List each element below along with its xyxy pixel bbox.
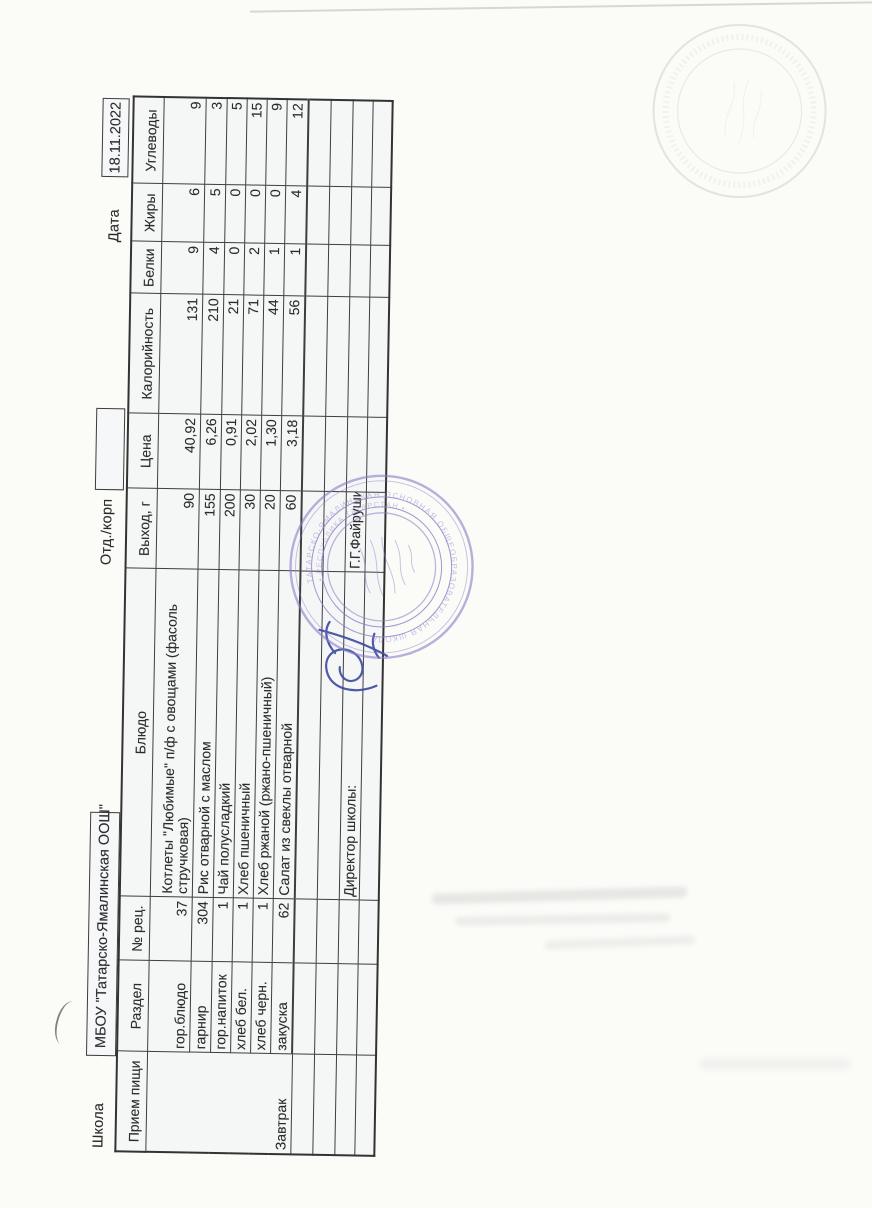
scan-smudge	[700, 1058, 850, 1070]
protein-cell: 2	[243, 243, 264, 295]
protein-cell: 9	[160, 242, 203, 295]
empty-cell	[351, 100, 373, 187]
empty-cell	[369, 246, 390, 298]
col-header-carbs: Углеводы	[132, 96, 164, 184]
col-header-meal: Прием пищи	[115, 1051, 147, 1152]
empty-cell	[290, 1054, 314, 1154]
empty-cell	[292, 963, 316, 1054]
empty-cell	[358, 900, 379, 964]
school-label: Школа	[90, 1103, 107, 1148]
output-cell: 200	[218, 490, 239, 570]
section-cell: закуска	[270, 963, 294, 1054]
empty-cell	[306, 186, 329, 244]
recipe-cell: 62	[272, 899, 295, 963]
section-cell: гор.напиток	[210, 962, 232, 1053]
empty-cell	[307, 99, 331, 186]
fat-cell: 5	[203, 185, 225, 243]
recipe-cell: 1	[232, 898, 253, 962]
fat-cell: 0	[264, 186, 285, 244]
empty-cell	[325, 297, 349, 417]
school-name: МБОУ "Татарско-Ямалинская ООШ"	[93, 804, 113, 1055]
carbs-cell: 9	[265, 99, 287, 186]
col-header-fat: Жиры	[131, 183, 162, 242]
calories-cell: 131	[158, 294, 202, 415]
empty-cell	[370, 188, 391, 246]
dept-box	[95, 408, 125, 490]
price-cell: 6,26	[199, 415, 221, 490]
price-cell: 40,92	[157, 414, 200, 490]
fat-cell: 4	[284, 186, 307, 244]
protein-cell: 0	[223, 243, 244, 295]
empty-cell	[367, 298, 389, 418]
calories-cell: 71	[241, 295, 263, 415]
calories-cell: 21	[221, 295, 243, 415]
empty-cell	[356, 964, 378, 1055]
col-header-calories: Калорийность	[128, 293, 160, 414]
carbs-cell: 12	[285, 99, 309, 186]
col-header-section: Раздел	[117, 960, 149, 1052]
empty-cell	[314, 964, 338, 1055]
calories-cell: 44	[261, 296, 283, 416]
recipe-cell: 304	[191, 898, 213, 962]
output-cell: 90	[155, 489, 198, 570]
col-header-price: Цена	[127, 413, 158, 489]
empty-cell	[329, 100, 353, 187]
empty-cell	[328, 187, 351, 245]
empty-cell	[354, 1055, 376, 1155]
empty-cell	[336, 964, 358, 1055]
col-header-output: Выход, г	[126, 488, 157, 569]
scanned-page: { "form": { "school_label": "Школа", "sc…	[0, 0, 872, 1200]
carbs-cell: 15	[245, 98, 267, 185]
carbs-cell: 5	[225, 98, 247, 185]
protein-cell: 1	[283, 244, 306, 296]
section-cell: гарнир	[189, 962, 212, 1053]
dish-cell: Котлеты "Любимые" п/ф с овощами (фасоль …	[150, 569, 198, 898]
empty-cell	[305, 244, 328, 296]
protein-cell: 4	[202, 243, 224, 295]
date-box: 18.11.2022	[101, 98, 129, 177]
recipe-cell: 1	[212, 898, 233, 962]
price-cell: 0,91	[220, 415, 241, 490]
date-label: Дата	[106, 209, 123, 242]
col-header-recipe: № рец.	[119, 896, 150, 961]
empty-cell	[350, 187, 371, 245]
price-cell: 3,18	[280, 416, 303, 491]
rotated-document-sheet: Школа МБОУ "Татарско-Ямалинская ООШ" Отд…	[2, 0, 872, 1208]
empty-cell	[349, 245, 370, 297]
empty-cell	[303, 296, 327, 416]
output-cell: 30	[238, 490, 259, 570]
carbs-cell: 9	[162, 97, 206, 185]
fat-cell: 0	[244, 185, 265, 243]
empty-cell	[294, 899, 317, 963]
empty-cell	[371, 101, 393, 188]
meal-cell: Завтрак	[145, 1052, 292, 1155]
section-cell: гор.блюдо	[147, 961, 191, 1053]
section-cell: хлеб черн.	[250, 963, 272, 1054]
dept-label: Отд./корп	[99, 499, 116, 566]
empty-cell	[334, 1055, 356, 1155]
empty-cell	[302, 416, 325, 491]
faint-stamp	[637, 8, 843, 214]
school-name-box: МБОУ "Татарско-Ямалинская ООШ"	[86, 812, 120, 1056]
calories-cell: 56	[281, 296, 305, 416]
price-cell: 1,30	[260, 416, 281, 491]
recipe-cell: 37	[149, 897, 192, 962]
empty-cell	[347, 297, 369, 417]
recipe-cell: 1	[252, 899, 273, 963]
date-value: 18.11.2022	[107, 99, 124, 176]
fat-cell: 6	[161, 184, 204, 243]
price-cell: 2,02	[240, 415, 261, 490]
output-cell: 155	[197, 490, 219, 570]
protein-cell: 1	[263, 244, 284, 296]
calories-cell: 210	[200, 295, 223, 415]
empty-cell	[312, 1055, 336, 1155]
empty-cell	[316, 900, 339, 964]
empty-cell	[327, 245, 350, 297]
carbs-cell: 3	[204, 98, 227, 185]
empty-cell	[338, 900, 359, 964]
col-header-protein: Белки	[130, 241, 161, 294]
section-cell: хлеб бел.	[230, 962, 252, 1053]
round-stamp: ТАТАРСКО-ЯМАЛИНСКАЯ ОСНОВНАЯ ОБЩЕОБРАЗОВ…	[268, 453, 496, 681]
fat-cell: 0	[224, 185, 245, 243]
